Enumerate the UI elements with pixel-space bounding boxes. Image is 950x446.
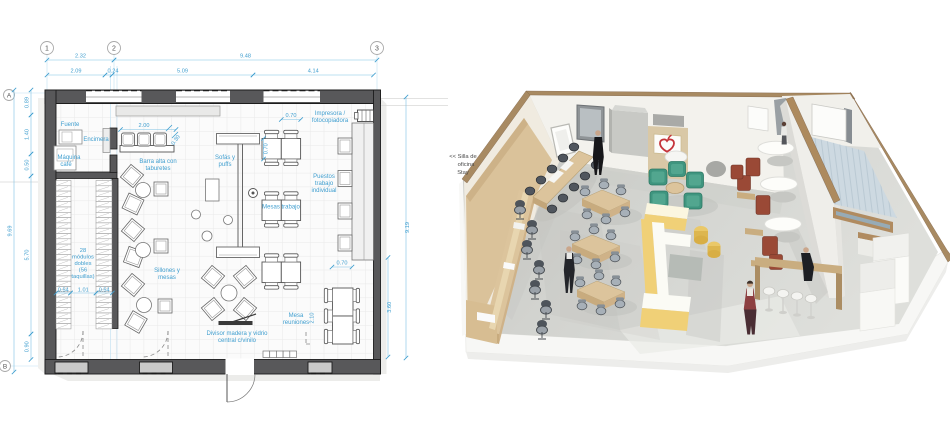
svg-text:<< Silla de: << Silla de [449,154,476,160]
svg-text:módulos: módulos [72,255,94,261]
svg-text:Barra alta con: Barra alta con [139,159,176,165]
svg-text:central c/vinilo: central c/vinilo [218,338,257,344]
svg-text:1.01: 1.01 [78,288,89,294]
svg-text:café: café [60,162,72,168]
svg-text:oficina: oficina [458,162,476,168]
svg-text:taquillas): taquillas) [71,274,94,280]
svg-text:9.69: 9.69 [8,226,14,237]
svg-text:5.09: 5.09 [177,69,188,75]
svg-text:Puestos: Puestos [313,174,335,180]
svg-text:0.50: 0.50 [25,160,31,171]
svg-text:3: 3 [375,46,379,53]
svg-text:1.40: 1.40 [25,129,31,140]
svg-text:taburetes: taburetes [145,166,170,172]
svg-text:A: A [7,93,12,100]
svg-text:(56: (56 [79,268,87,274]
svg-text:0.54: 0.54 [58,288,69,294]
svg-text:5.70: 5.70 [25,250,31,261]
svg-text:Impresora /: Impresora / [315,111,346,117]
svg-text:3.60: 3.60 [387,302,393,313]
svg-text:Fuente: Fuente [61,122,80,128]
svg-text:mesas: mesas [158,275,176,281]
svg-text:2.32: 2.32 [75,54,86,60]
svg-text:Mesa: Mesa [289,313,304,319]
svg-text:0.89: 0.89 [25,97,31,108]
svg-text:9.48: 9.48 [240,54,251,60]
svg-text:0.70: 0.70 [264,143,270,154]
svg-text:B: B [3,364,7,371]
svg-text:Máquina: Máquina [57,155,81,161]
svg-text:0.70: 0.70 [286,113,297,119]
svg-text:0.54: 0.54 [99,288,110,294]
svg-text:Sofás y: Sofás y [215,155,235,161]
svg-text:28: 28 [80,248,86,254]
svg-text:2.10: 2.10 [310,313,316,324]
svg-text:puffs: puffs [219,162,232,168]
svg-text:2.09: 2.09 [71,69,82,75]
svg-text:Sillones y: Sillones y [154,268,180,274]
svg-text:2: 2 [112,46,116,53]
svg-text:fotocopiadora: fotocopiadora [312,118,349,124]
svg-text:Encimera: Encimera [83,137,109,143]
svg-text:Divisor madera y vidrio: Divisor madera y vidrio [206,331,268,337]
svg-text:Stay: Stay [457,170,469,176]
svg-text:0.70: 0.70 [337,261,348,267]
svg-text:trabajo: trabajo [315,181,334,187]
svg-text:2.00: 2.00 [139,123,150,129]
svg-text:reuniones: reuniones [283,320,309,326]
svg-text:dobles: dobles [74,261,91,267]
svg-text:Mesas trabajo: Mesas trabajo [262,205,300,211]
svg-text:0.90: 0.90 [25,341,31,352]
svg-text:1: 1 [45,46,49,53]
svg-text:individual: individual [311,188,336,194]
svg-text:4.14: 4.14 [308,69,319,75]
svg-text:9.19: 9.19 [405,222,411,233]
